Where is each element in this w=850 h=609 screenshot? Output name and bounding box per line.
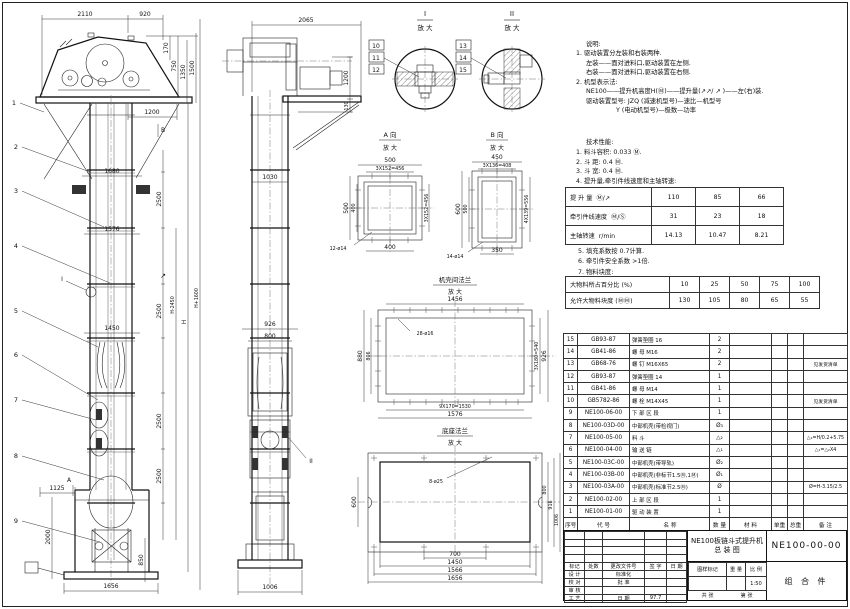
table-cell [689, 577, 727, 591]
table-cell [585, 570, 603, 578]
table-cell: 牵引件线速度 Ⓜ/Ⓢ [566, 207, 652, 226]
table-cell: 1:50 [746, 577, 767, 591]
balloon-12: 12 [372, 67, 380, 74]
detail-flange-title: 机壳间法兰 [439, 275, 472, 284]
table-cell [804, 407, 848, 419]
table-cell: 1 [710, 506, 730, 518]
table-cell [585, 586, 603, 594]
table-cell: 上 部 区 段 [630, 493, 710, 505]
table-cell: Ø₂ [710, 456, 730, 468]
table-cell: 55 [790, 293, 820, 309]
table-row: 审 核 [565, 586, 687, 594]
view-marker-b: B [161, 127, 165, 134]
table-cell [788, 432, 804, 444]
dim-base-holes: 8-ø25 [429, 479, 443, 485]
drawing-title-line1: NE100板链斗式提升机 [688, 537, 766, 546]
table-cell: 中部机壳(带检视门) [630, 420, 710, 432]
dim-fl-holes: 28-ø16 [417, 331, 434, 337]
detail-b-zoom-label: 放 大 [490, 144, 504, 152]
detail-i-zoom-label: 放 大 [417, 23, 433, 32]
dim-920: 920 [139, 11, 151, 18]
dim-1450: 1450 [104, 325, 119, 332]
table-cell: NE100-03A-00 [578, 481, 630, 493]
table-cell: 8.21 [740, 226, 784, 245]
table-cell [730, 420, 772, 432]
balloon-6: 6 [14, 351, 18, 359]
table-cell: 序号 [564, 518, 578, 530]
table-cell [667, 578, 687, 586]
notes-block: 说明: 1. 驱动装置分左装和右装两种. 左装——面对进料口,驱动装置在左侧. … [572, 40, 844, 116]
table-cell [772, 469, 788, 481]
table-row: 主轴转速 r/min 14.13 10.47 8.21 [566, 226, 784, 245]
table-cell: 7 [564, 432, 578, 444]
dim-fl-540: 3X180=540 [534, 342, 540, 371]
table-row [565, 539, 687, 547]
note-line: Y (电动机型号)—极数—功率 [616, 106, 844, 115]
table-cell [645, 547, 667, 555]
detail-a-title: A 向 [383, 130, 396, 139]
front-dimensions: 2110 920 170 750 1350 1500 1200 B 1680 1… [12, 11, 200, 594]
table-cell: 名 称 [630, 518, 710, 530]
table-cell: 65 [760, 293, 790, 309]
dim-850: 850 [138, 554, 145, 566]
table-cell: 备 注 [804, 518, 848, 530]
table-cell [804, 420, 848, 432]
table-row: 序号代 号名 称数 量材 料单重总重备 注 [564, 518, 848, 530]
table-cell [772, 420, 788, 432]
table-cell: 提 升 量 Ⓜ/↗ [566, 188, 652, 207]
table-cell: 66 [740, 188, 784, 207]
table-row: 6NE100-04-00输 送 链△₁△₁=△₂X4 [564, 444, 848, 456]
table-row: 3NE100-03A-00中部机壳(标准节2.5Ⓜ)ØØ=H-3.15/2.5 [564, 481, 848, 493]
table-cell [804, 370, 848, 382]
dim-750: 750 [171, 60, 178, 72]
table-row: 4NE100-03B-00中部机壳(非标节1.5Ⓜ,1Ⓜ)Ø₁ [564, 469, 848, 481]
dim-fl-1576: 1576 [447, 411, 462, 418]
table-cell: 总重 [788, 518, 804, 530]
table-cell [772, 334, 788, 346]
table-cell: 日 期 [603, 594, 645, 602]
dim-h-2450: H-2450 [170, 296, 176, 314]
table-cell [730, 432, 772, 444]
dim-h: H [181, 320, 188, 325]
table-row: 9NE100-06-00下 部 区 段1 [564, 407, 848, 419]
sheet-total: 共 张 [701, 592, 713, 599]
perf-line: 6. 牵引件安全系数 >1倍. [578, 257, 844, 267]
table-cell [565, 532, 585, 540]
table-row: 5NE100-03C-00中部机壳(带导轨)Ø₂ [564, 456, 848, 468]
table-row: 11GB41-86螺 母 M141 [564, 383, 848, 395]
table-row: 2NE100-02-00上 部 区 段1 [564, 493, 848, 505]
elevator-drawing: I ↗ [0, 0, 563, 609]
dim-2110: 2110 [77, 11, 92, 18]
table-row: 校 对批 准 [565, 578, 687, 586]
dim-2065: 2065 [298, 17, 313, 24]
table-cell: 110 [652, 188, 696, 207]
table-row: 允许大物料块度 (ⓂⓂ) 130 105 80 65 55 [566, 293, 820, 309]
dim-1656: 1656 [103, 583, 118, 590]
table-cell: 80 [730, 293, 760, 309]
table-cell: NE100-02-00 [578, 493, 630, 505]
table-cell [730, 493, 772, 505]
table-cell [772, 407, 788, 419]
sheet-count-row: 共 张 第 张 [688, 591, 766, 600]
table-cell: 1 [564, 506, 578, 518]
table-row [565, 555, 687, 563]
table-cell: GB93-87 [578, 370, 630, 382]
dim-h1600: H+1600 [194, 288, 200, 308]
dim-a-500-left: 500 [343, 202, 350, 214]
dim-base-916: 916 [548, 500, 554, 509]
table-cell [565, 547, 585, 555]
dim-a-456-right: 3X152=456 [424, 194, 430, 223]
table-cell [772, 346, 788, 358]
dim-b-500: 500 [463, 204, 469, 213]
table-cell [667, 594, 687, 602]
table-cell [645, 539, 667, 547]
table-cell: △₁=△₂X4 [804, 444, 848, 456]
table-cell: 重 量 [727, 563, 746, 577]
table-cell: NE100-03C-00 [578, 456, 630, 468]
table-row [565, 547, 687, 555]
perf-line: 5. 填充系数按 0.7计算. [578, 247, 844, 257]
notes-heading: 说明: [586, 40, 844, 49]
table-cell: 标准化 [603, 570, 645, 578]
drawing-number: NE100-00-00 [767, 531, 846, 562]
balloon-4: 4 [14, 242, 18, 250]
table-cell [730, 481, 772, 493]
balloon-15: 15 [459, 67, 467, 74]
table-cell: GB93-87 [578, 334, 630, 346]
table-row [565, 532, 687, 540]
dim-1030: 1030 [262, 174, 277, 181]
table-cell: 14.13 [652, 226, 696, 245]
table-cell: 主轴转速 r/min [566, 226, 652, 245]
table-cell [667, 555, 687, 563]
dim-fl-880: 880 [357, 350, 364, 362]
table-cell: 螺 母 M14 [630, 383, 710, 395]
table-cell [788, 456, 804, 468]
table-cell: 11 [564, 383, 578, 395]
speed-table: 提 升 量 Ⓜ/↗ 110 85 66 牵引件线速度 Ⓜ/Ⓢ 31 23 18 … [565, 187, 784, 245]
table-cell: 比 例 [746, 563, 767, 577]
table-cell: 日 期 [667, 562, 687, 570]
balloon-5: 5 [14, 307, 18, 315]
table-row: 大物料所占百分比 (%) 10 25 50 75 100 [566, 277, 820, 293]
table-cell [772, 481, 788, 493]
table-cell: 材 料 [730, 518, 772, 530]
dim-fl-806: 806 [366, 351, 372, 360]
table-row: 1:50 [689, 577, 767, 591]
table-cell: GB41-86 [578, 346, 630, 358]
table-cell: NE100-03B-00 [578, 469, 630, 481]
table-cell: 数 量 [710, 518, 730, 530]
dim-2500-a: 2500 [156, 191, 163, 206]
table-row: 14GB41-86螺 母 M162 [564, 346, 848, 358]
table-cell: 驱 动 装 置 [630, 506, 710, 518]
performance-heading: 技术性能: [586, 138, 844, 148]
table-cell: 代 号 [578, 518, 630, 530]
table-cell: 更改文件号 [603, 562, 645, 570]
table-cell: 工 艺 [565, 594, 585, 602]
balloon-7: 7 [14, 396, 18, 404]
table-cell: 批 准 [603, 578, 645, 586]
table-row: 15GB93-87弹簧垫圈 162 [564, 334, 848, 346]
balloon-8: 8 [14, 452, 18, 460]
table-cell: 2 [564, 493, 578, 505]
detail-flange-zoom-label: 放 大 [448, 288, 462, 296]
table-cell [772, 506, 788, 518]
title-block-middle: NE100板链斗式提升机 总 装 图 图样标记重 量比 例1:50 共 张 第 … [687, 531, 767, 600]
sheet-number: 第 张 [740, 592, 752, 599]
table-cell [804, 383, 848, 395]
table-cell: GB5782-86 [578, 395, 630, 407]
table-cell [730, 383, 772, 395]
dim-2000: 2000 [45, 529, 52, 544]
table-cell: △₂ [710, 432, 730, 444]
detail-base-title: 底座法兰 [442, 426, 469, 435]
table-cell [772, 493, 788, 505]
dim-a-holes: 12-ø14 [330, 246, 347, 252]
dim-b-350: 350 [491, 247, 503, 254]
table-cell [603, 532, 645, 540]
table-cell [603, 586, 645, 594]
table-cell: 设 计 [565, 570, 585, 578]
note-line: 1. 驱动装置分左装和右装两种. [576, 49, 844, 58]
dim-1576: 1576 [104, 226, 119, 233]
table-cell: 100 [790, 277, 820, 293]
table-cell [730, 358, 772, 370]
dim-base-800: 800 [542, 485, 548, 494]
table-cell: 校 对 [565, 578, 585, 586]
table-cell [772, 432, 788, 444]
balloon-14: 14 [459, 55, 467, 62]
table-cell: 单重 [772, 518, 788, 530]
dim-a-400-bottom: 400 [384, 244, 396, 251]
table-cell [788, 506, 804, 518]
table-cell [585, 594, 603, 602]
table-cell [667, 539, 687, 547]
table-cell [788, 481, 804, 493]
perf-line: 4. 提升量,牵引件线速度和主轴转速: [576, 177, 844, 187]
table-cell [772, 395, 788, 407]
table-cell [804, 346, 848, 358]
table-cell: 处数 [585, 562, 603, 570]
table-cell: 签 字 [645, 562, 667, 570]
table-cell: 弹簧垫圈 14 [630, 370, 710, 382]
table-cell: 料 斗 [630, 432, 710, 444]
table-cell: 中部机壳(标准节2.5Ⓜ) [630, 481, 710, 493]
table-cell [730, 370, 772, 382]
table-cell: 螺 母 M16 [630, 346, 710, 358]
dim-base-1566: 1566 [447, 567, 462, 574]
dim-130: 130 [344, 101, 350, 110]
dim-base-1006: 1006 [554, 514, 560, 526]
table-cell [645, 578, 667, 586]
dim-1125: 1125 [49, 485, 64, 492]
table-cell [730, 346, 772, 358]
table-cell [585, 539, 603, 547]
balloon-1: 1 [12, 99, 16, 107]
dim-2500-d: 2500 [156, 468, 163, 483]
detail-b-view: B 向 放 大 450 3X136=408 600 500 4X139=556 … [447, 130, 534, 260]
title-block-right: NE100-00-00 组 合 件 [767, 531, 846, 600]
table-cell: Ø₁ [710, 469, 730, 481]
table-cell: 1 [710, 493, 730, 505]
table-cell: 12 [564, 370, 578, 382]
perf-line: 1. 料斗容积: 0.033 Ⓜ. [576, 148, 844, 158]
table-cell: Ø [710, 481, 730, 493]
table-cell [772, 383, 788, 395]
front-elevation-view: I ↗ [25, 33, 192, 585]
table-cell [603, 555, 645, 563]
dim-base-700: 700 [449, 551, 461, 558]
table-cell [645, 532, 667, 540]
table-cell: 50 [730, 277, 760, 293]
dim-fl-1530: 9X170=1530 [439, 404, 471, 410]
table-row: 设 计标准化 [565, 570, 687, 578]
dim-2500-b: 2500 [156, 303, 163, 318]
revision-sign-table: 标记处数更改文件号签 字日 期设 计标准化校 对批 准审 核工 艺日 期97.7 [564, 531, 687, 603]
detail-base-flange-view: 底座法兰 放 大 [351, 426, 560, 584]
table-cell [603, 547, 645, 555]
part-class-label: 组 合 件 [767, 562, 846, 600]
table-cell [585, 532, 603, 540]
section-marker-i: I [61, 276, 63, 283]
table-cell: △₂=H/0.2+5.75 [804, 432, 848, 444]
table-cell: 2 [710, 334, 730, 346]
table-cell [772, 456, 788, 468]
table-cell: 3 [564, 481, 578, 493]
table-row: 工 艺日 期97.7 [565, 594, 687, 602]
table-cell [585, 555, 603, 563]
table-cell [667, 532, 687, 540]
table-cell: 14 [564, 346, 578, 358]
dim-base-600: 600 [351, 496, 358, 508]
side-elevation-view: 2065 1200 130 1030 926 800 1006 II [222, 17, 361, 595]
table-cell [788, 395, 804, 407]
dim-b-holes: 14-ø14 [447, 254, 464, 260]
note-line: 右装——面对进料口,驱动装置在右侧. [586, 68, 844, 77]
table-cell [804, 334, 848, 346]
table-cell: 见发货清单 [804, 395, 848, 407]
table-cell: 23 [696, 207, 740, 226]
table-cell: 2 [710, 358, 730, 370]
table-cell: NE100-05-00 [578, 432, 630, 444]
table-cell: Ø₃ [710, 420, 730, 432]
dim-926: 926 [264, 321, 276, 328]
table-cell: 10 [564, 395, 578, 407]
detail-ii-view: II 放 大 13 14 15 [456, 10, 545, 112]
dim-2500-c: 2500 [156, 413, 163, 428]
table-cell [804, 456, 848, 468]
dim-b-556: 4X139=556 [524, 195, 530, 224]
table-cell: 螺 栓 M14X45 [630, 395, 710, 407]
table-cell [788, 370, 804, 382]
table-cell: NE100-01-00 [578, 506, 630, 518]
table-cell [772, 358, 788, 370]
table-cell [804, 469, 848, 481]
table-cell [645, 570, 667, 578]
notes-after-block: 5. 填充系数按 0.7计算. 6. 牵引件安全系数 >1倍. 7. 物料块度: [578, 247, 844, 278]
table-cell: 130 [670, 293, 700, 309]
table-cell [727, 577, 746, 591]
table-cell: 105 [700, 293, 730, 309]
balloon-9: 9 [14, 517, 18, 525]
perf-line: 2. 斗 距: 0.4 Ⓜ. [576, 158, 844, 168]
dim-b-600: 600 [455, 203, 462, 215]
dim-base-1656: 1656 [447, 575, 462, 582]
table-cell [788, 383, 804, 395]
table-row: 7NE100-05-00料 斗△₂△₂=H/0.2+5.75 [564, 432, 848, 444]
table-cell [730, 444, 772, 456]
table-row: 10GB5782-86螺 栓 M14X451见发货清单 [564, 395, 848, 407]
table-cell [645, 555, 667, 563]
table-row: 标记处数更改文件号签 字日 期 [565, 562, 687, 570]
table-cell [730, 334, 772, 346]
balloon-11: 11 [372, 55, 380, 62]
dim-fl-926: 926 [541, 350, 548, 362]
table-cell: 审 核 [565, 586, 585, 594]
section-marker-ii: II [309, 458, 313, 465]
lump-size-table: 大物料所占百分比 (%) 10 25 50 75 100 允许大物料块度 (ⓂⓂ… [565, 276, 820, 309]
dim-side-1200: 1200 [343, 70, 350, 85]
table-cell: 下 部 区 段 [630, 407, 710, 419]
table-cell: 输 送 链 [630, 444, 710, 456]
table-cell: 6 [564, 444, 578, 456]
drawing-title: NE100板链斗式提升机 总 装 图 [688, 531, 766, 562]
table-cell [788, 334, 804, 346]
table-cell: 9 [564, 407, 578, 419]
table-cell: 31 [652, 207, 696, 226]
table-cell: 螺 钉 M16X65 [630, 358, 710, 370]
note-line: NE100——提升机高度H(Ⓜ)——提升量(↗↗/ ↗ )——左(右)装. [586, 87, 844, 96]
table-row: 图样标记重 量比 例 [689, 563, 767, 577]
table-cell [645, 586, 667, 594]
dim-1680: 1680 [104, 168, 119, 175]
stamp-table: 图样标记重 量比 例1:50 [688, 562, 767, 591]
table-cell [788, 420, 804, 432]
table-cell [565, 539, 585, 547]
table-cell: 图样标记 [689, 563, 727, 577]
table-cell: 18 [740, 207, 784, 226]
table-cell [788, 358, 804, 370]
table-cell: NE100-03D-00 [578, 420, 630, 432]
detail-casing-flange-view: 机壳间法兰 放 大 1456 28 [357, 275, 556, 418]
detail-b-title: B 向 [490, 130, 503, 139]
table-cell: 10 [670, 277, 700, 293]
table-cell [788, 493, 804, 505]
dim-b-408: 3X136=408 [483, 163, 512, 169]
dim-1500: 1500 [189, 60, 196, 75]
drawing-sheet: { "sheet": { "title": "NE100板链斗式提升机", "s… [0, 0, 850, 609]
detail-i-title: I [424, 10, 426, 18]
table-cell [667, 547, 687, 555]
dim-a-456-top: 3X152=456 [376, 166, 405, 172]
table-cell: 允许大物料块度 (ⓂⓂ) [566, 293, 670, 309]
table-cell: 中部机壳(非标节1.5Ⓜ,1Ⓜ) [630, 469, 710, 481]
table-cell: 10.47 [696, 226, 740, 245]
table-cell [603, 539, 645, 547]
table-cell [804, 506, 848, 518]
table-cell [565, 555, 585, 563]
table-cell: 1 [710, 395, 730, 407]
table-cell [788, 469, 804, 481]
table-cell [667, 570, 687, 578]
table-cell: 13 [564, 358, 578, 370]
table-cell: 标记 [565, 562, 585, 570]
section-marker-a: A [67, 477, 72, 484]
